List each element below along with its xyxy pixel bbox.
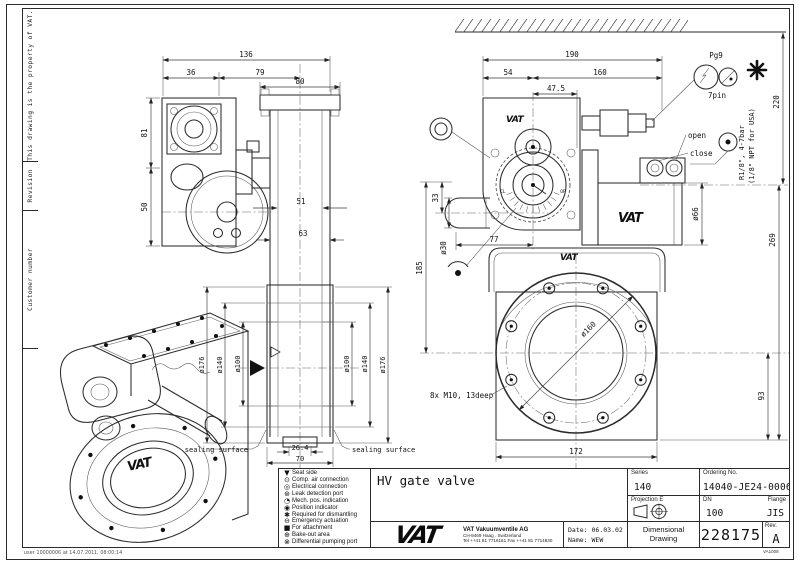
- legend-label: Differential pumping port: [292, 539, 357, 546]
- date-label: Date:: [568, 526, 588, 534]
- sheet-inner-border: [22, 8, 790, 548]
- form-code: VA1008: [763, 549, 779, 554]
- sidebar-empty-section: [23, 349, 38, 546]
- name-label: Name:: [568, 536, 588, 544]
- date-value: 06.03.02: [592, 526, 623, 534]
- title-block: HV gate valve Series 140 Ordering No. 14…: [370, 468, 790, 548]
- vat-logo-text: VAT: [393, 521, 442, 547]
- flange-label: Flange: [768, 497, 786, 503]
- rev-label: Rev.: [765, 523, 777, 529]
- legend-item: ⊙Comp. air connection: [282, 477, 370, 484]
- doc-type-line2: Drawing: [650, 535, 678, 544]
- legend-label: Bake-out area: [292, 532, 330, 539]
- revision-section: Revision: [23, 162, 38, 211]
- ordering-label: Ordering No.: [703, 470, 737, 476]
- legend-label: Mech. pos. indication: [292, 498, 348, 505]
- legend-label: Emergency actuation: [292, 518, 348, 525]
- legend-item: ⊕Bake-out area: [282, 532, 370, 539]
- legend-label: Position indicator: [292, 505, 338, 512]
- revision-label: Revision: [27, 169, 34, 203]
- legend-item: ✱Required for dismantling: [282, 512, 370, 519]
- company-address: VAT Vakuumventile AG CH-9469 Haag . Swit…: [463, 522, 563, 547]
- legend-label: Leak detection port: [292, 491, 343, 498]
- ordering-cell: Ordering No. 14040-JE24-0006: [699, 469, 789, 495]
- name-value: WEW: [592, 536, 604, 544]
- vat-logo: VAT: [371, 522, 463, 547]
- customer-number-label: Customer number: [27, 248, 34, 311]
- rev-value: A: [763, 532, 789, 546]
- legend-item: ▼Seat side: [282, 470, 370, 477]
- legend-label: Electrical connection: [292, 484, 347, 491]
- drawing-number: 228175: [700, 522, 762, 547]
- legend-label: Required for dismantling: [292, 512, 357, 519]
- legend-label: Comp. air connection: [292, 477, 349, 484]
- series-value: 140: [634, 482, 651, 493]
- customer-number-section: Customer number: [23, 211, 38, 349]
- legend-item: ⊖Emergency actuation: [282, 518, 370, 525]
- company-cell: VAT VAT Vakuumventile AG CH-9469 Haag . …: [371, 521, 627, 547]
- drawing-number-cell: 228175 Rev. A: [699, 521, 789, 547]
- legend-item: ■For attachment: [282, 525, 370, 532]
- legend-item: ⊛Leak detection port: [282, 491, 370, 498]
- legend-label: For attachment: [292, 525, 332, 532]
- company-phone: Tel ++41 81 7716161 Fax ++41 81 7714830: [463, 538, 563, 543]
- drawing-title-cell: HV gate valve: [371, 469, 627, 521]
- ordering-value: 14040-JE24-0006: [703, 482, 789, 493]
- flange-value: JIS: [767, 508, 784, 519]
- doc-type-cell: Dimensional Drawing: [627, 521, 699, 547]
- dn-flange-cell: DN Flange 100 JIS: [699, 495, 789, 521]
- drawing-title: HV gate valve: [371, 469, 627, 488]
- first-angle-projection-icon: [632, 503, 672, 520]
- print-stamp: user 10000006 at 14.07.2011, 08:00:14: [24, 550, 122, 556]
- sheet-sidebar: This drawing is the property of VAT. Rev…: [23, 9, 38, 546]
- property-note-section: This drawing is the property of VAT.: [23, 9, 38, 162]
- dn-value: 100: [706, 508, 723, 519]
- legend-item: ⊗Differential pumping port: [282, 539, 370, 546]
- series-cell: Series 140: [627, 469, 699, 495]
- legend-item: ◉Position indicator: [282, 505, 370, 512]
- projection-cell: Projection E: [627, 495, 699, 521]
- dn-label: DN: [703, 497, 712, 503]
- legend-item: ◎Electrical connection: [282, 484, 370, 491]
- property-note: This drawing is the property of VAT.: [27, 10, 34, 161]
- drawing-sheet: 136 36 79 80 81 50 51 63: [0, 0, 800, 566]
- series-label: Series: [631, 470, 648, 476]
- legend-label: Seat side: [292, 470, 317, 477]
- revision-box: Rev. A: [762, 522, 789, 547]
- date-name-box: Date: 06.03.02 Name: WEW: [563, 522, 627, 547]
- symbol-legend: ▼Seat side ⊙Comp. air connection ◎Electr…: [278, 468, 370, 548]
- diff-pumping-icon: ⊗: [282, 539, 292, 546]
- legend-item: ◔Mech. pos. indication: [282, 498, 370, 505]
